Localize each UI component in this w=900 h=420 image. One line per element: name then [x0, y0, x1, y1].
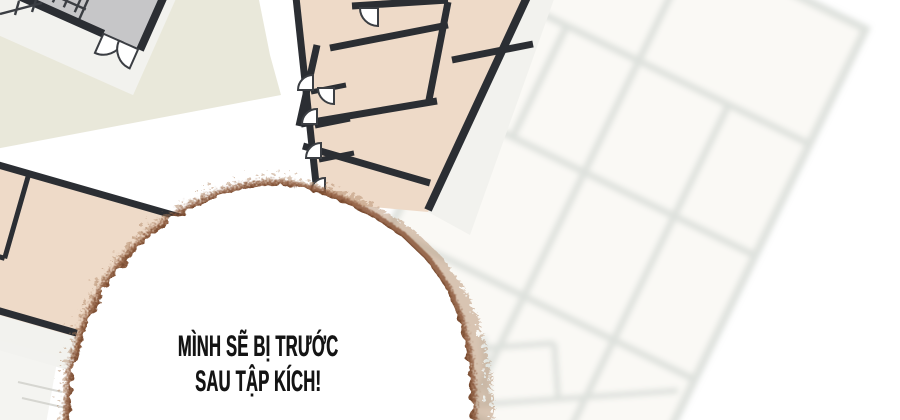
- dialogue-line-1: MÌNH SẼ BỊ TRƯỚC: [132, 329, 385, 364]
- dialogue-line-2: SAU TẬP KÍCH!: [132, 364, 385, 399]
- speech-bubble-text: MÌNH SẼ BỊ TRƯỚC SAU TẬP KÍCH!: [132, 329, 385, 399]
- comic-panel: MÌNH SẼ BỊ TRƯỚC SAU TẬP KÍCH!: [0, 0, 900, 420]
- door-swing-icon: [298, 75, 313, 90]
